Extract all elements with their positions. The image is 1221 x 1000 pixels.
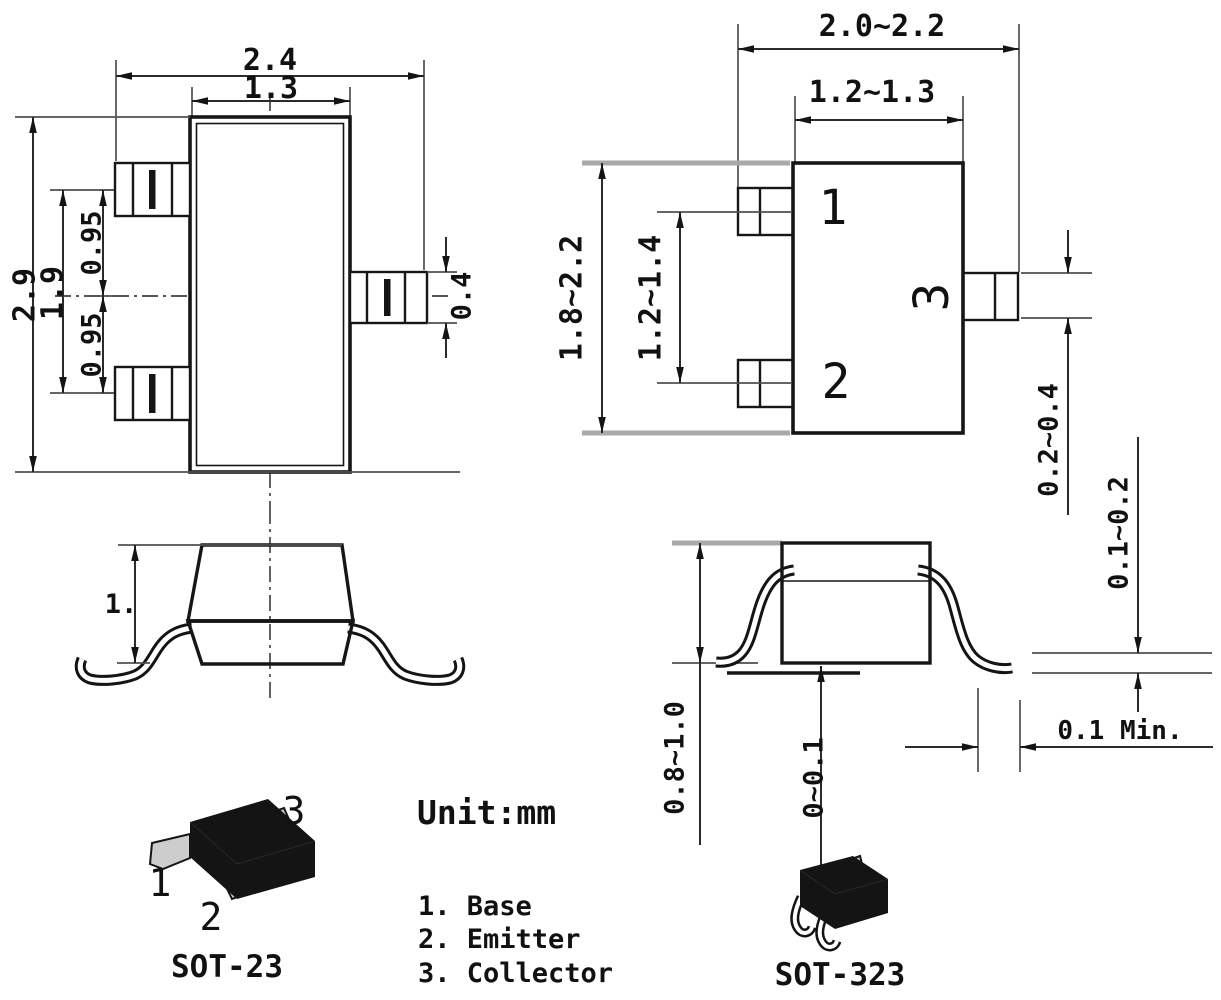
sot323-dim-lead-pitch: 1.2~1.4 <box>634 212 793 383</box>
sot323-top-view: 2.0~2.2 1.2~1.3 1 2 3 <box>555 9 1093 515</box>
sot23-lead-width-label: 0.4 <box>446 272 477 321</box>
sot23-dim-lead-width: 0.4 <box>427 237 477 358</box>
sot23-package-label: SOT-23 <box>171 949 283 985</box>
sot323-dim-foot-length: 0.1 Min. <box>905 688 1213 772</box>
sot23-side-lead-right <box>348 628 460 680</box>
sot323-foot-length-label: 0.1 Min. <box>1057 716 1182 746</box>
sot323-package-label: SOT-323 <box>775 957 906 993</box>
sot23-3d-pin1-label: 1 <box>149 861 172 905</box>
sot323-lead-width-label: 0.2~0.4 <box>1033 383 1064 497</box>
sot323-dim-lead-width: 0.2~0.4 <box>1021 230 1092 515</box>
sot23-dim-pitch-upper: 0.95 <box>76 190 107 296</box>
legend-item-collector: 3. Collector <box>418 958 613 989</box>
sot23-top-view: 2.4 1.3 <box>8 43 478 508</box>
sot323-overall-height-label: 1.8~2.2 <box>555 235 590 361</box>
sot23-3d-pin2-label: 2 <box>200 895 223 939</box>
package-outline-drawing: 2.4 1.3 <box>0 0 1221 1000</box>
legend-item-base: 1. Base <box>418 891 532 922</box>
sot323-pin3-label: 3 <box>904 283 960 312</box>
sot23-body-width-label: 1.3 <box>244 71 298 106</box>
sot23-pitch-lower-label: 0.95 <box>76 312 107 377</box>
sot323-lead-3 <box>963 273 1018 320</box>
sot323-dim-body-width: 1.2~1.3 <box>795 75 963 162</box>
sot323-standoff-label: 0~0.1 <box>798 737 829 818</box>
drawing-canvas: 2.4 1.3 <box>0 0 1221 1000</box>
sot323-side-view: 0.8~1.0 0~0.1 0.1~0.2 0.1 Min. <box>659 437 1213 905</box>
sot23-3d-pin3-label: 3 <box>283 789 306 833</box>
sot23-side-lead-left <box>80 628 192 680</box>
sot23-dim-pitch-lower: 0.95 <box>76 296 107 393</box>
legend: Unit:mm 1. Base 2. Emitter 3. Collector <box>417 793 613 989</box>
legend-item-emitter: 2. Emitter <box>418 924 581 955</box>
sot23-body-height-label: 1. <box>105 589 138 620</box>
sot323-lead-thickness-label: 0.1~0.2 <box>1103 476 1134 590</box>
sot323-3d-view: SOT-323 <box>775 856 906 993</box>
sot323-overall-width-label: 2.0~2.2 <box>819 9 945 44</box>
sot323-lead-pitch-label: 1.2~1.4 <box>634 235 669 361</box>
sot23-lead-span-label: 1.9 <box>36 266 71 320</box>
sot323-dim-overall-height: 1.8~2.2 <box>555 163 603 433</box>
sot323-pin2-label: 2 <box>822 354 851 410</box>
sot23-dim-body-height: 1. <box>105 545 342 663</box>
sot323-side-lead-right <box>918 570 1012 669</box>
sot23-pitch-upper-label: 0.95 <box>76 210 107 275</box>
sot23-body-outline <box>190 117 350 472</box>
sot23-dim-body-width: 1.3 <box>192 71 350 116</box>
sot323-pin1-label: 1 <box>819 180 848 236</box>
sot23-lead-1 <box>115 163 190 216</box>
sot23-3d-view: 1 2 3 SOT-23 <box>149 789 315 985</box>
sot323-dim-body-height: 0.8~1.0 <box>659 543 700 845</box>
sot323-body-height-label: 0.8~1.0 <box>659 701 690 815</box>
sot323-body-width-label: 1.2~1.3 <box>809 75 935 110</box>
sot23-side-view: 1. <box>80 508 459 700</box>
sot323-side-body <box>782 543 930 663</box>
unit-note: Unit:mm <box>417 793 556 832</box>
sot23-lead-2 <box>115 367 190 420</box>
sot23-lead-3 <box>350 272 427 323</box>
